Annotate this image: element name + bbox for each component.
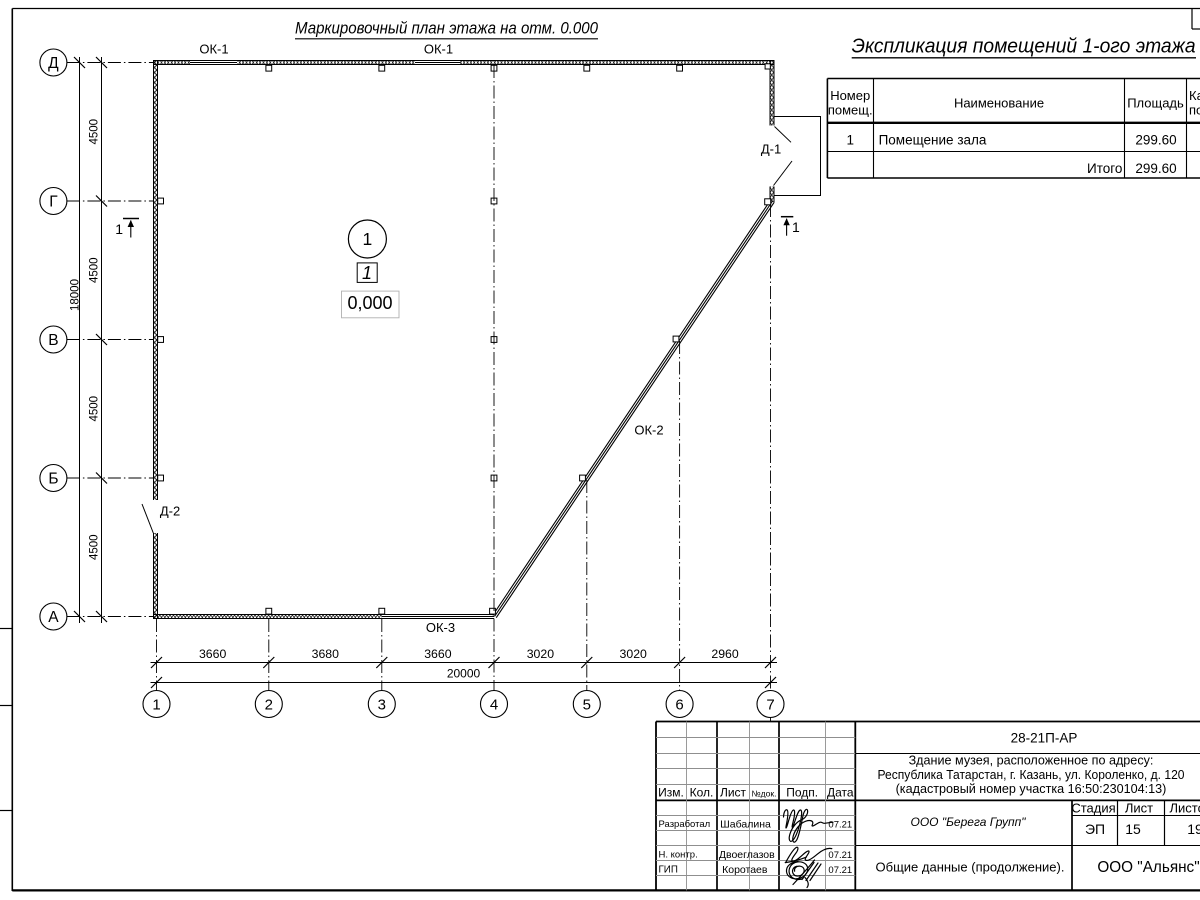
svg-text:Коротаев: Коротаев [722,864,768,876]
svg-text:299.60: 299.60 [1135,161,1176,176]
svg-text:Помещение зала: Помещение зала [879,133,987,148]
svg-text:Лист: Лист [1125,801,1153,816]
svg-text:20000: 20000 [447,667,481,681]
svg-text:1: 1 [115,221,123,237]
svg-text:Шабалина: Шабалина [720,818,771,830]
svg-text:Д-2: Д-2 [160,504,180,519]
svg-text:№док.: №док. [752,789,777,799]
svg-text:299.60: 299.60 [1135,133,1176,148]
svg-text:Экспликация помещений 1-ого эт: Экспликация помещений 1-ого этажа [852,35,1196,58]
svg-text:3: 3 [378,696,386,713]
svg-text:Кол.: Кол. [690,786,714,800]
svg-text:Стадия: Стадия [1071,801,1115,816]
svg-text:Здание музея, расположенное по: Здание музея, расположенное по адресу: [909,754,1154,768]
svg-text:2960: 2960 [711,647,739,661]
svg-text:В: В [48,332,58,349]
svg-text:1: 1 [362,263,372,283]
svg-text:ООО "Берега Групп": ООО "Берега Групп" [911,815,1027,829]
svg-text:Г: Г [49,193,58,210]
svg-text:Ка: Ка [1189,88,1200,103]
svg-text:4500: 4500 [89,534,101,560]
svg-text:0,000: 0,000 [347,293,392,313]
svg-text:ОК-1: ОК-1 [424,42,453,57]
svg-text:Общие данные (продолжение).: Общие данные (продолжение). [876,860,1065,875]
svg-text:7: 7 [766,696,774,713]
svg-text:ОК-1: ОК-1 [199,42,228,57]
svg-text:Итого: Итого [1087,161,1122,176]
svg-text:1: 1 [846,133,854,148]
svg-text:07.21: 07.21 [828,819,852,830]
svg-text:Лист: Лист [720,786,747,800]
svg-text:07.21: 07.21 [828,850,852,861]
svg-text:Д: Д [48,55,59,72]
svg-text:Изм.: Изм. [658,786,684,800]
svg-text:Наименование: Наименование [954,96,1044,111]
svg-text:Б: Б [48,470,58,487]
svg-text:19: 19 [1187,821,1200,837]
svg-text:Дата: Дата [827,786,854,800]
svg-text:(кадастровый номер участка 16:: (кадастровый номер участка 16:50:230104:… [896,782,1167,796]
svg-text:15: 15 [1125,821,1141,837]
svg-text:по: по [1189,103,1200,118]
svg-text:1: 1 [152,696,160,713]
svg-text:3020: 3020 [620,647,648,661]
svg-text:Д-1: Д-1 [761,142,781,157]
svg-text:Площадь: Площадь [1127,96,1184,111]
svg-text:3660: 3660 [424,647,452,661]
svg-text:28-21П-АР: 28-21П-АР [1011,731,1078,746]
svg-text:1: 1 [792,219,800,235]
svg-text:3660: 3660 [199,647,227,661]
svg-text:07.21: 07.21 [828,865,852,876]
svg-text:6: 6 [675,696,683,713]
svg-text:ОК-3: ОК-3 [426,620,455,635]
svg-text:помещ.: помещ. [828,103,873,118]
svg-text:4: 4 [490,696,498,713]
svg-text:Двоеглазов: Двоеглазов [719,849,775,861]
svg-text:ЭП: ЭП [1085,821,1105,837]
svg-text:2: 2 [265,696,273,713]
svg-text:3020: 3020 [527,647,555,661]
svg-text:Разработал: Разработал [659,819,711,830]
svg-text:18000: 18000 [70,279,82,311]
svg-text:Номер: Номер [830,88,870,103]
svg-text:Листов: Листов [1170,801,1200,816]
svg-text:4500: 4500 [89,396,101,422]
svg-text:Маркировочный план этажа на от: Маркировочный план этажа на отм. 0.000 [295,20,598,38]
svg-text:4500: 4500 [89,119,101,145]
svg-text:ГИП: ГИП [659,864,678,875]
svg-text:5: 5 [583,696,591,713]
svg-text:А: А [48,609,59,626]
svg-text:1: 1 [363,229,373,249]
svg-text:3680: 3680 [312,647,340,661]
svg-text:ОК-2: ОК-2 [634,423,663,438]
svg-text:Республика Татарстан, г. Казан: Республика Татарстан, г. Казань, ул. Кор… [878,768,1185,782]
svg-text:Подп.: Подп. [786,786,818,800]
svg-text:4500: 4500 [89,257,101,283]
svg-text:ООО "Альянс": ООО "Альянс" [1097,859,1199,876]
svg-text:Н. контр.: Н. контр. [659,849,698,860]
